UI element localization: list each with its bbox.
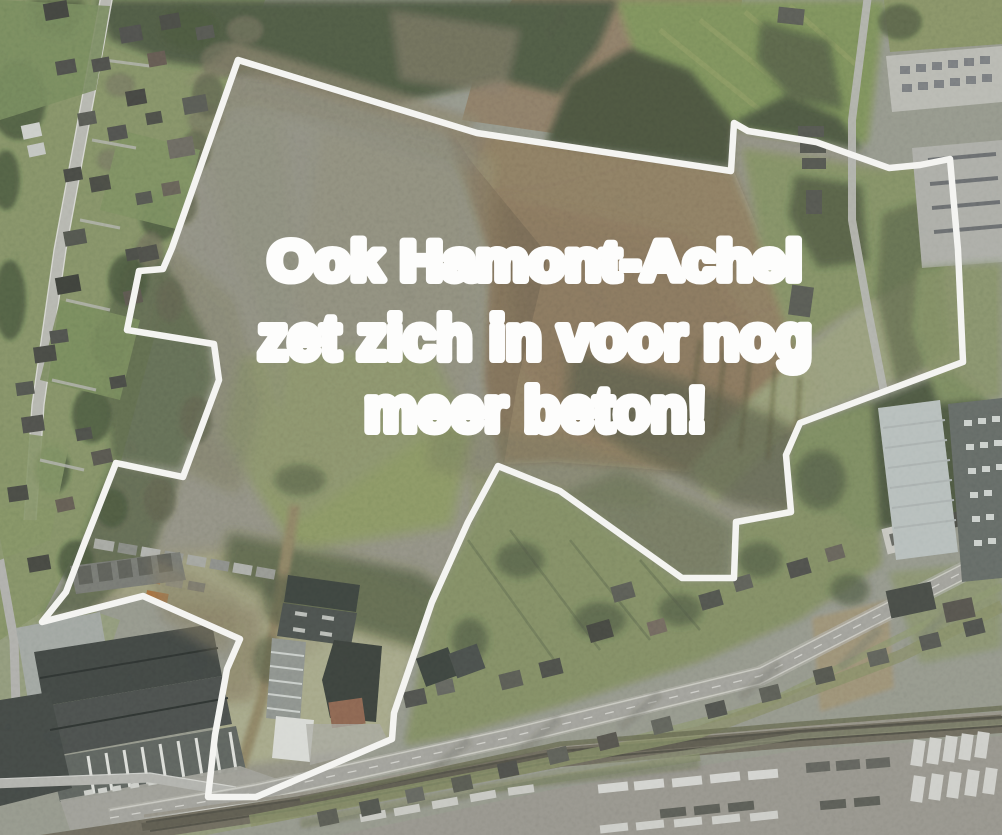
svg-text:Ook Hamont-Achel: Ook Hamont-Achel	[268, 229, 802, 292]
svg-text:meer beton!: meer beton!	[364, 376, 707, 445]
svg-text:zet zich in voor nog: zet zich in voor nog	[258, 304, 812, 373]
